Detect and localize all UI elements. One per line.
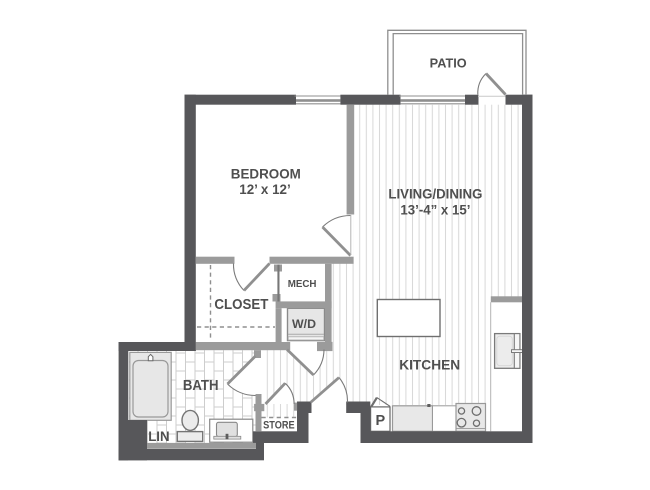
svg-text:P: P: [375, 413, 385, 429]
svg-text:CLOSET: CLOSET: [214, 297, 268, 313]
svg-text:W/D: W/D: [292, 319, 316, 331]
svg-text:BATH: BATH: [183, 378, 219, 394]
svg-text:12’ x 12’: 12’ x 12’: [239, 182, 291, 197]
svg-text:LIN: LIN: [148, 429, 169, 444]
svg-text:LIVING/DINING: LIVING/DINING: [388, 185, 482, 201]
svg-text:KITCHEN: KITCHEN: [399, 357, 460, 373]
svg-text:BEDROOM: BEDROOM: [231, 167, 301, 182]
svg-text:STORE: STORE: [263, 420, 295, 432]
svg-text:PATIO: PATIO: [430, 57, 467, 71]
svg-text:MECH: MECH: [288, 279, 317, 290]
svg-text:13’-4” x 15’: 13’-4” x 15’: [400, 203, 470, 218]
